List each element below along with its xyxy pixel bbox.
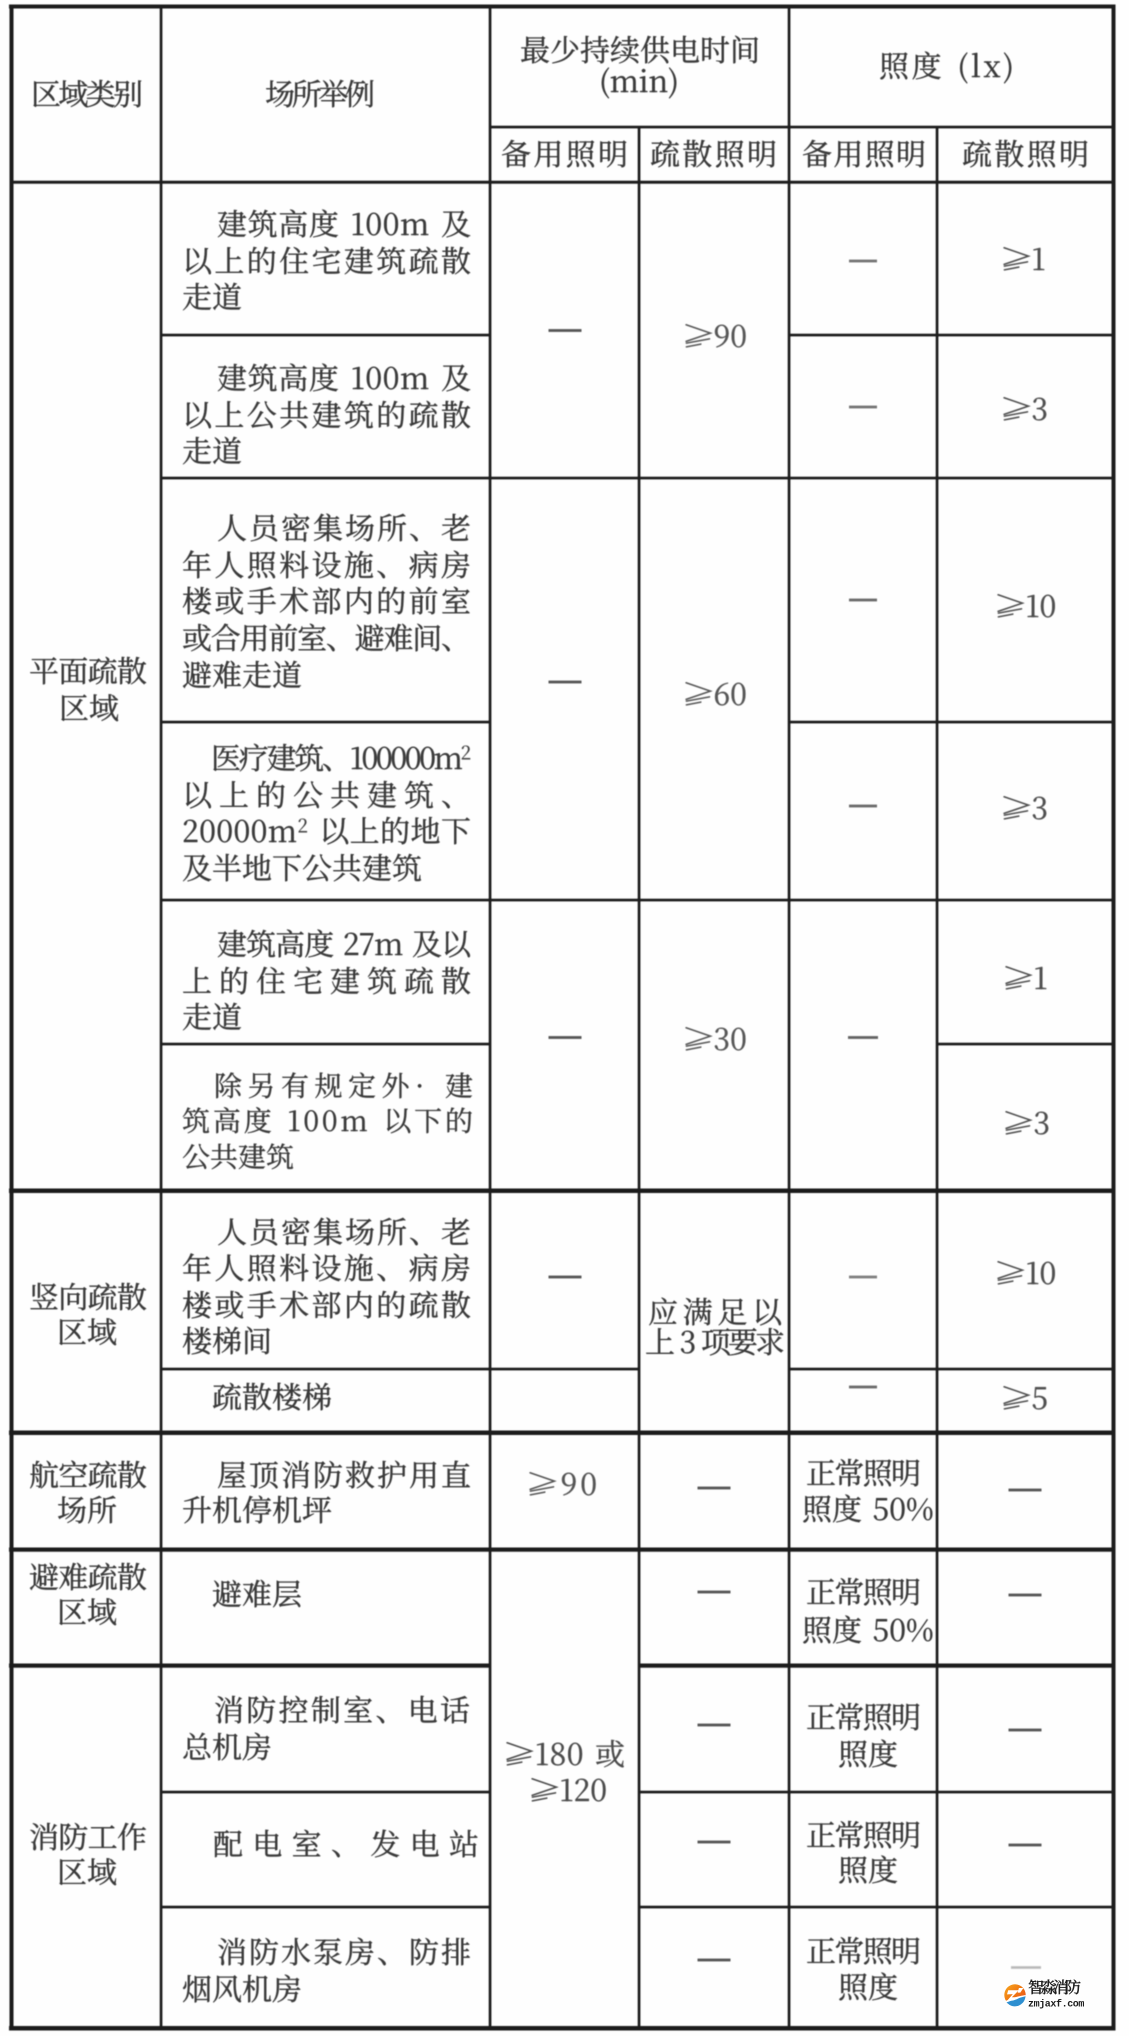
- svg-text:zmjaxf.com: zmjaxf.com: [1028, 1999, 1084, 2011]
